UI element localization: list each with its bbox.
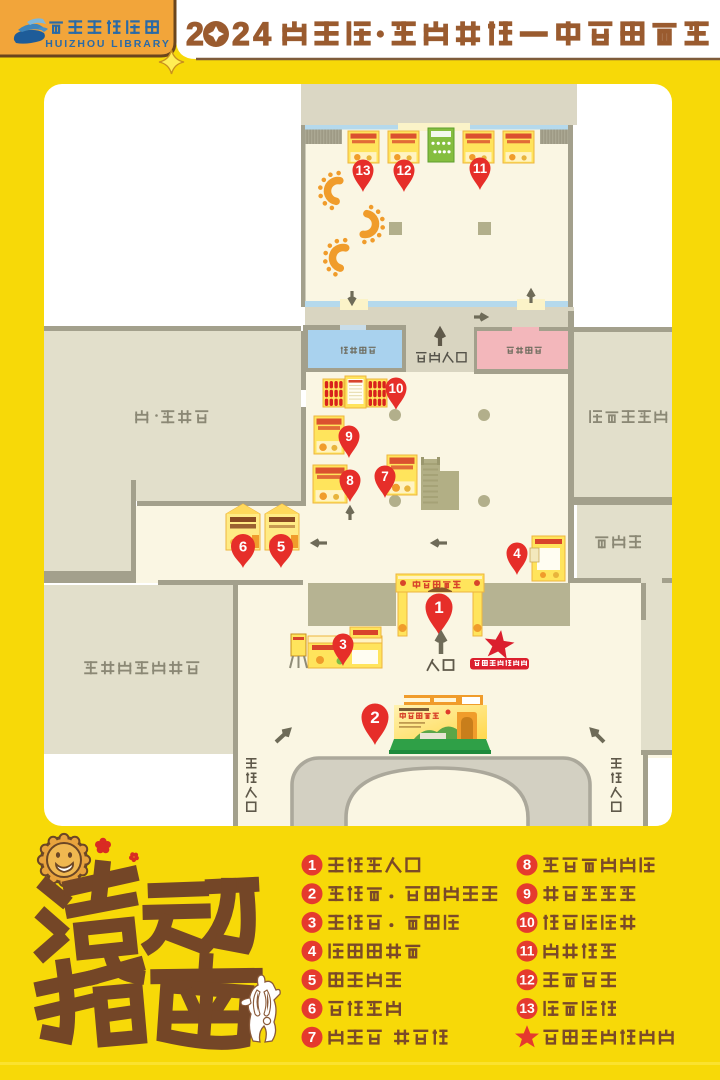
- svg-text:4: 4: [513, 546, 521, 561]
- svg-text:8: 8: [523, 857, 531, 874]
- svg-text:11: 11: [520, 943, 535, 959]
- svg-text:2: 2: [370, 708, 379, 727]
- svg-text:1: 1: [434, 598, 443, 617]
- svg-text:3: 3: [308, 914, 316, 931]
- svg-text:1: 1: [308, 857, 316, 874]
- svg-text:6: 6: [239, 538, 247, 555]
- svg-text:13: 13: [355, 163, 371, 178]
- svg-text:6: 6: [308, 1001, 316, 1018]
- svg-text:12: 12: [396, 163, 411, 178]
- svg-text:9: 9: [523, 885, 531, 901]
- svg-text:5: 5: [308, 972, 316, 989]
- svg-text:7: 7: [381, 469, 389, 484]
- svg-text:8: 8: [346, 473, 354, 488]
- svg-text:12: 12: [519, 971, 535, 987]
- svg-text:10: 10: [519, 914, 535, 930]
- svg-text:3: 3: [339, 637, 347, 652]
- svg-text:7: 7: [308, 1029, 316, 1046]
- svg-text:11: 11: [473, 161, 488, 176]
- svg-text:2: 2: [308, 886, 316, 903]
- svg-text:24: 24: [232, 16, 275, 52]
- svg-text:HUIZHOU LIBRARY: HUIZHOU LIBRARY: [45, 38, 171, 50]
- svg-text:5: 5: [277, 538, 285, 555]
- svg-text:9: 9: [345, 429, 353, 444]
- svg-text:4: 4: [308, 943, 317, 960]
- svg-text:10: 10: [388, 381, 403, 396]
- svg-text:13: 13: [519, 1000, 535, 1016]
